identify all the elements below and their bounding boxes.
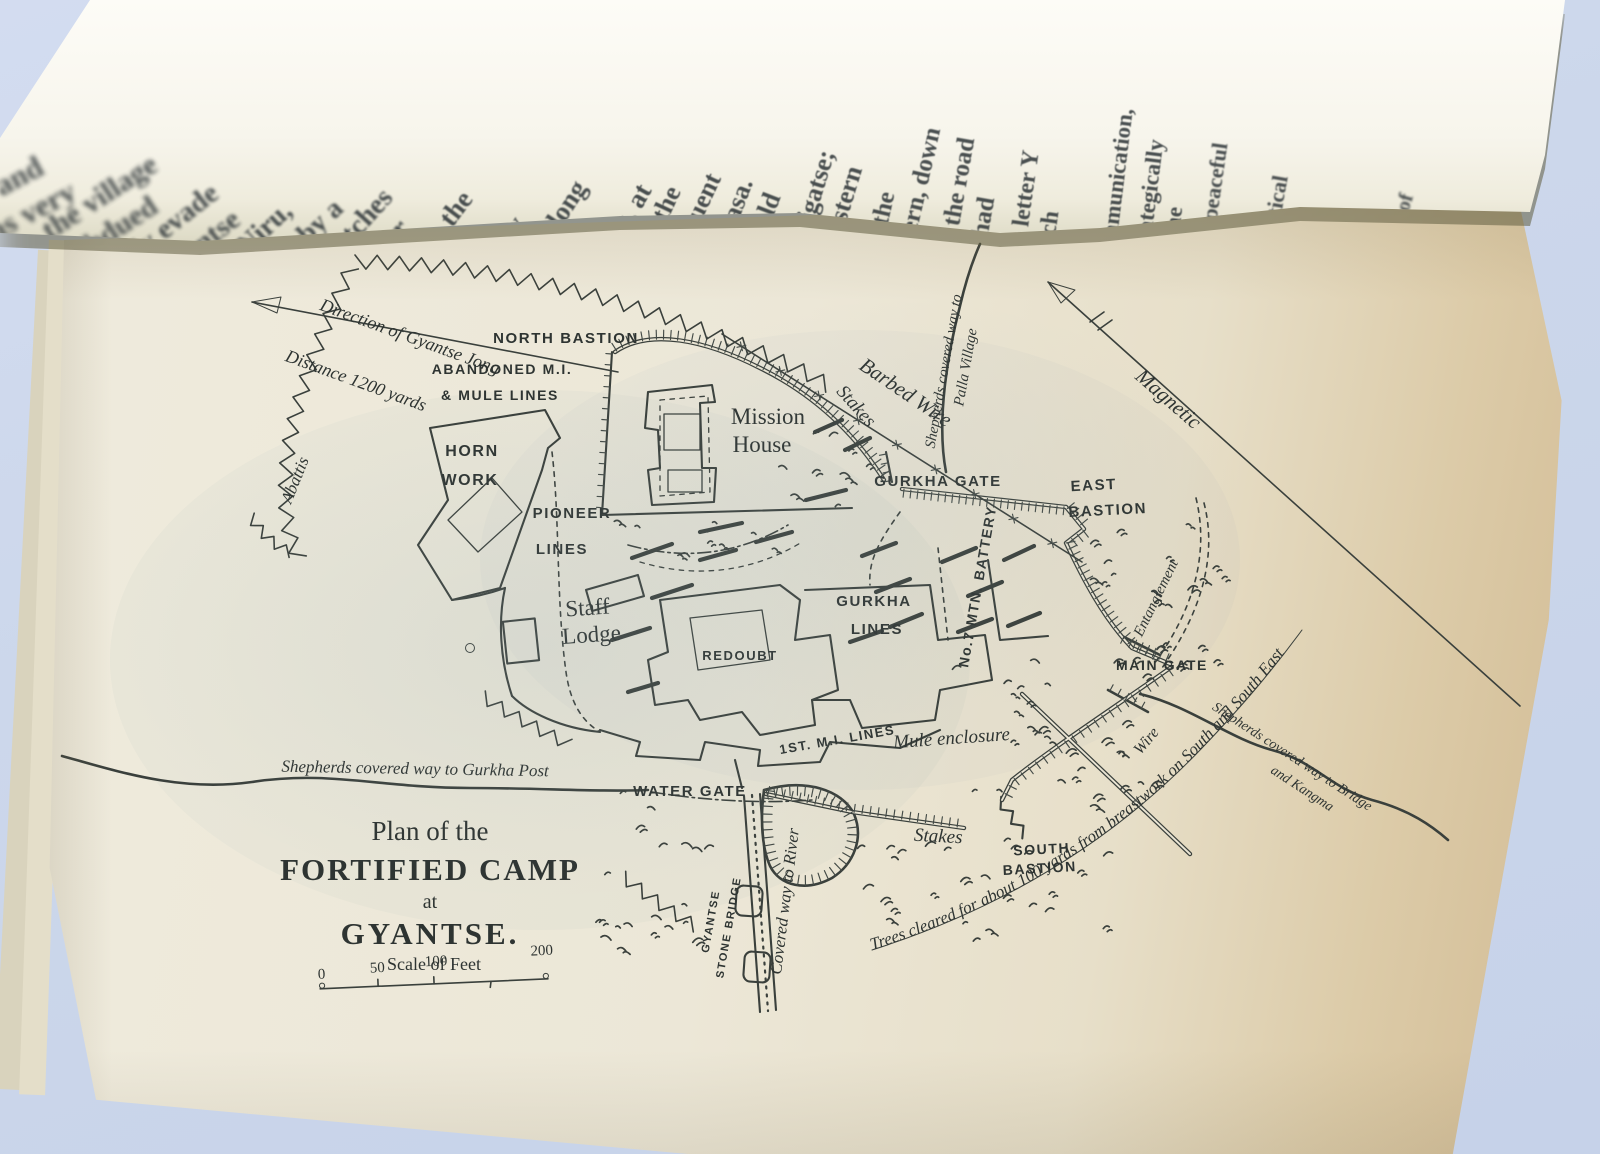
label-gurkha-gate: GURKHA GATE [874,473,1002,490]
map-title-line1: Plan of the [372,816,489,846]
map-title-line3: at [423,891,438,913]
label-redoubt: REDOUBT [702,648,777,663]
label-pioneer-lines: LINES [536,541,588,558]
scale-tick-50: 50 [370,960,386,977]
label-staff-lodge: Staff [565,593,611,621]
scale-tick-0: 0 [317,967,325,983]
label-staff-lodge: Lodge [561,620,621,649]
label-gurkha-lines: LINES [851,621,903,638]
label-direction-distance: Distance 1200 yards [282,345,429,415]
label-abandoned-mi: ABANDONED M.I. [432,361,573,377]
label-mule-lines: & MULE LINES [441,387,559,403]
scale-tick-200: 200 [530,943,553,960]
label-water-gate: WATER GATE [633,783,747,800]
scale-tick-100: 100 [425,953,448,970]
label-horn-work: HORN [445,443,499,460]
label-east-bastion: EAST [1070,476,1117,495]
photo-of-book-map: { "photo": { "background_color": "#ccd7e… [0,0,1600,1154]
label-north-bastion: NORTH BASTION [493,330,639,347]
label-gurkha-lines: GURKHA [836,593,911,610]
south-bastion-work [1001,797,1024,839]
label-main-gate: MAIN GATE [1116,657,1208,673]
label-stakes-south: Stakes [913,825,963,849]
map-title-line4: GYANTSE. [341,916,520,951]
label-mission-house: House [733,432,792,457]
label-mission-house: Mission [731,404,806,429]
label-wire: Wire [1131,724,1163,758]
label-horn-work: WORK [441,472,498,489]
label-pioneer-lines: PIONEER [533,505,612,522]
map-title-line2: FORTIFIED CAMP [280,852,580,887]
